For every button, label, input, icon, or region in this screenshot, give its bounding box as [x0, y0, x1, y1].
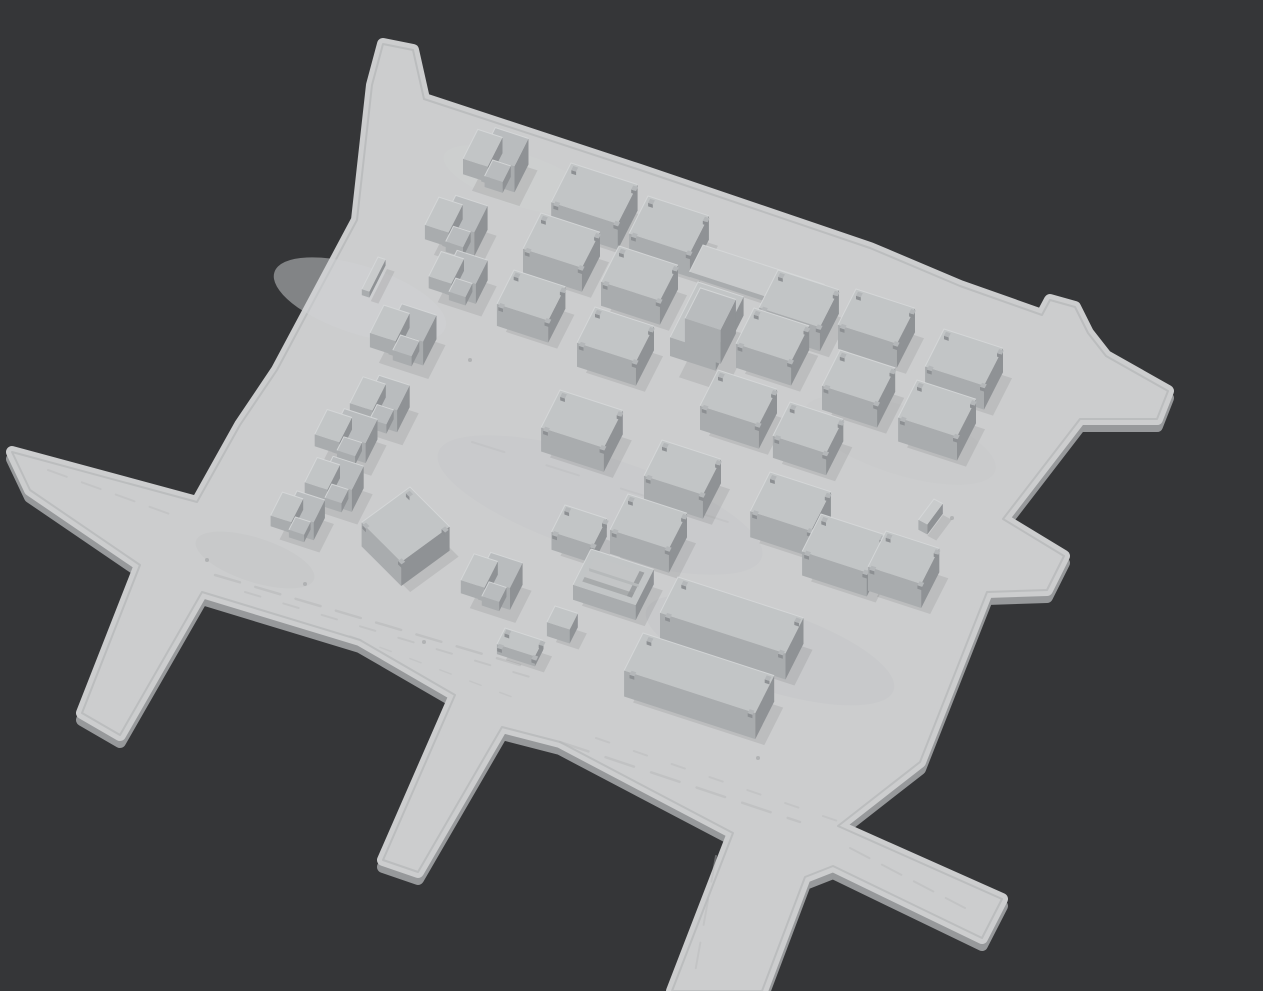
debris-dot: [205, 558, 209, 562]
city-block-3d-model: [0, 0, 1263, 991]
debris-dot: [756, 756, 760, 760]
debris-dot: [422, 640, 426, 644]
debris-dot: [468, 358, 472, 362]
debris-dot: [303, 582, 307, 586]
render-viewport[interactable]: [0, 0, 1263, 991]
